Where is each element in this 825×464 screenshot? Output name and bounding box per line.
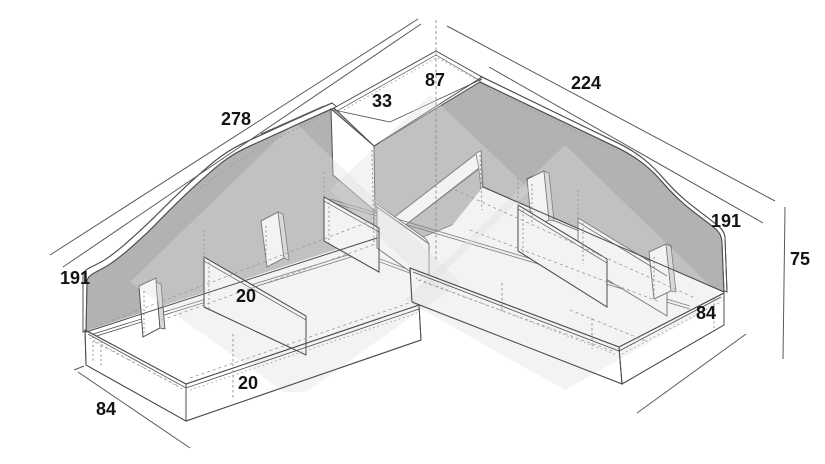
svg-text:224: 224 (571, 73, 601, 93)
svg-text:84: 84 (696, 303, 716, 323)
svg-text:84: 84 (96, 399, 116, 419)
svg-text:87: 87 (425, 70, 445, 90)
svg-text:33: 33 (372, 91, 392, 111)
svg-text:20: 20 (238, 373, 258, 393)
svg-text:191: 191 (711, 211, 741, 231)
svg-text:20: 20 (236, 286, 256, 306)
svg-text:191: 191 (60, 268, 90, 288)
svg-text:75: 75 (790, 249, 810, 269)
svg-text:278: 278 (221, 109, 251, 129)
